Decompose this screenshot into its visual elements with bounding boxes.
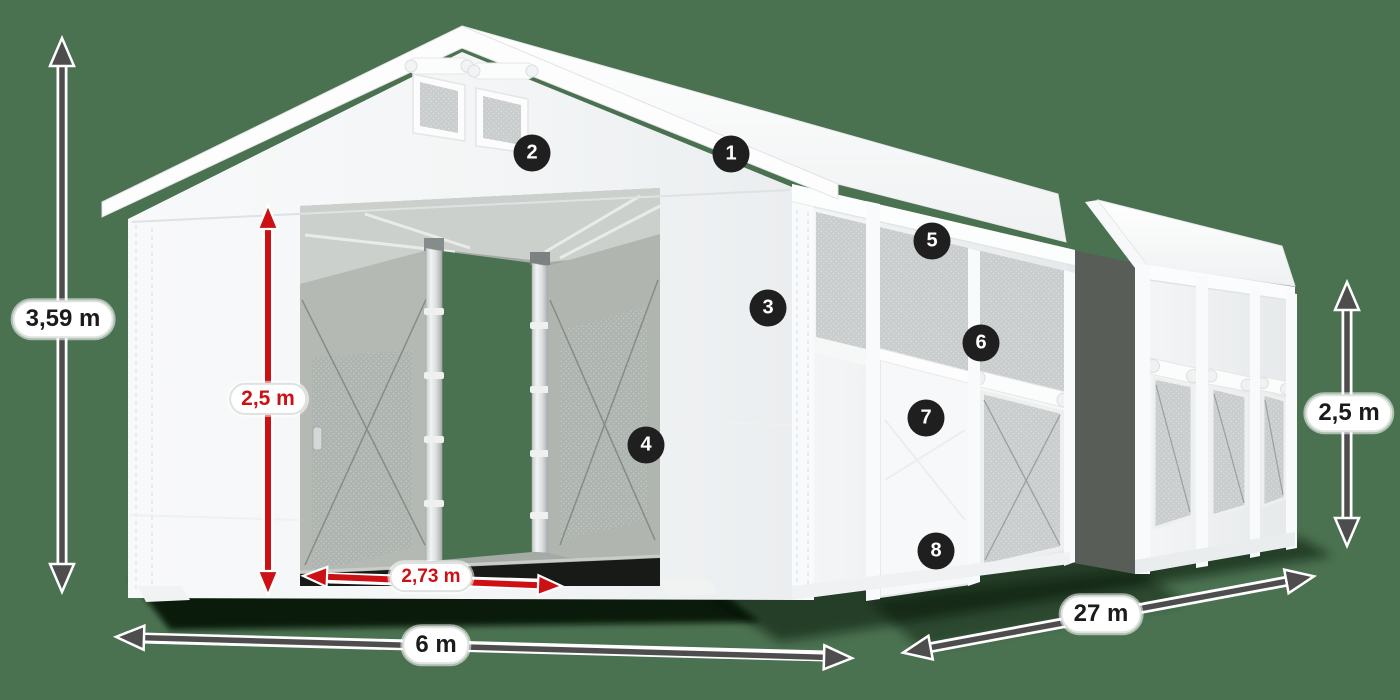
callout-3[interactable]: 3 bbox=[750, 290, 787, 327]
tent-illustration bbox=[0, 0, 1400, 700]
callout-8[interactable]: 8 bbox=[918, 533, 955, 570]
callout-6[interactable]: 6 bbox=[963, 325, 1000, 362]
callout-2[interactable]: 2 bbox=[514, 135, 551, 172]
entrance-height-label: 2,5 m bbox=[229, 383, 307, 415]
total-height-label: 3,59 m bbox=[13, 300, 114, 338]
entrance-width-label: 2,73 m bbox=[389, 562, 472, 592]
side-height-label: 2,5 m bbox=[1305, 394, 1392, 432]
callout-5[interactable]: 5 bbox=[914, 223, 951, 260]
front-width-arrow bbox=[120, 637, 848, 658]
tent-interior bbox=[300, 188, 660, 590]
callout-4[interactable]: 4 bbox=[628, 427, 665, 464]
door-handle bbox=[313, 427, 322, 450]
callout-7[interactable]: 7 bbox=[908, 400, 945, 437]
product-dimension-diagram: 3,59 m 2,5 m 2,73 m 6 m 27 m 2,5 m 1 2 3… bbox=[0, 0, 1400, 700]
length-label: 27 m bbox=[1061, 595, 1142, 633]
callout-1[interactable]: 1 bbox=[713, 136, 750, 173]
front-width-label: 6 m bbox=[402, 626, 469, 664]
gable-vent-window bbox=[405, 58, 473, 141]
